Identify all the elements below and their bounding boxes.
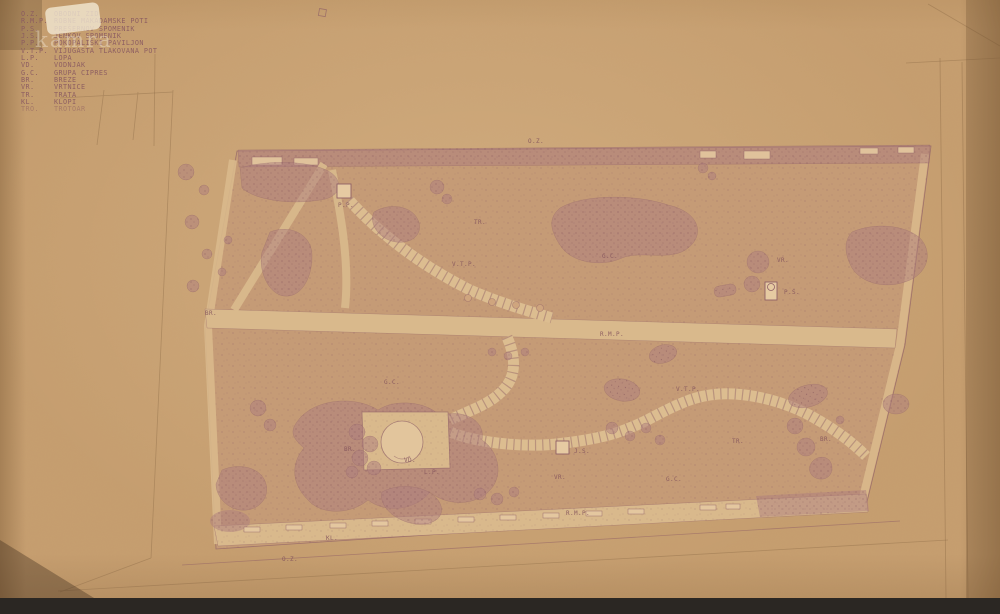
plan-label: O.Z.	[282, 556, 298, 563]
legend-row: KL.KLOPI	[21, 99, 157, 106]
legend-row: G.C.GRUPA CIPRES	[21, 70, 157, 77]
plan-label: O.Z.	[528, 138, 544, 145]
plan-label: TR.	[732, 438, 744, 445]
legend-row: TR.TRATA	[21, 92, 157, 99]
legend-row: BR.BREZE	[21, 77, 157, 84]
preseren-monument	[765, 282, 777, 300]
plan-label: VR.	[777, 257, 789, 264]
pavilion-square	[337, 184, 351, 198]
plan-label: BR.	[205, 310, 217, 317]
plan-label: VR.	[554, 474, 566, 481]
legend-row: VR.VRTNICE	[21, 84, 157, 91]
plan-label: BR.	[344, 446, 356, 453]
legend-label: TROTOAR	[54, 106, 85, 113]
plan-label: G.C.	[384, 379, 400, 386]
plan-label: V.T.P.	[676, 386, 700, 393]
plan-label: BR.	[820, 436, 832, 443]
plan-label: KL.	[326, 535, 338, 542]
jenko-monument-square	[556, 441, 569, 454]
plan-label: L.P.	[424, 469, 440, 476]
plan-label: G.C.	[602, 253, 618, 260]
legend-row: L.P.LOPA	[21, 55, 157, 62]
scanner-background-band	[0, 598, 1000, 614]
plan-label: J.S.	[574, 448, 590, 455]
legend-abbr: TRO.	[21, 106, 54, 113]
watermark-text: kamra	[35, 28, 113, 52]
scanned-plan-page: { "watermark": { "text": "kamra" }, "leg…	[0, 0, 1000, 614]
plan-label: R.M.P.	[600, 331, 624, 338]
fountain-circle	[381, 421, 423, 463]
legend-row: TRO.TROTOAR	[21, 106, 157, 113]
plan-label: TR.	[474, 219, 486, 226]
plan-label: V.T.P.	[452, 261, 476, 268]
plan-label: VD.	[404, 457, 416, 464]
plan-label: P.S.	[784, 289, 800, 296]
plan-label: G.C.	[666, 476, 682, 483]
plan-label: R.M.P.	[566, 510, 590, 517]
plan-label: P.P.	[338, 202, 354, 209]
